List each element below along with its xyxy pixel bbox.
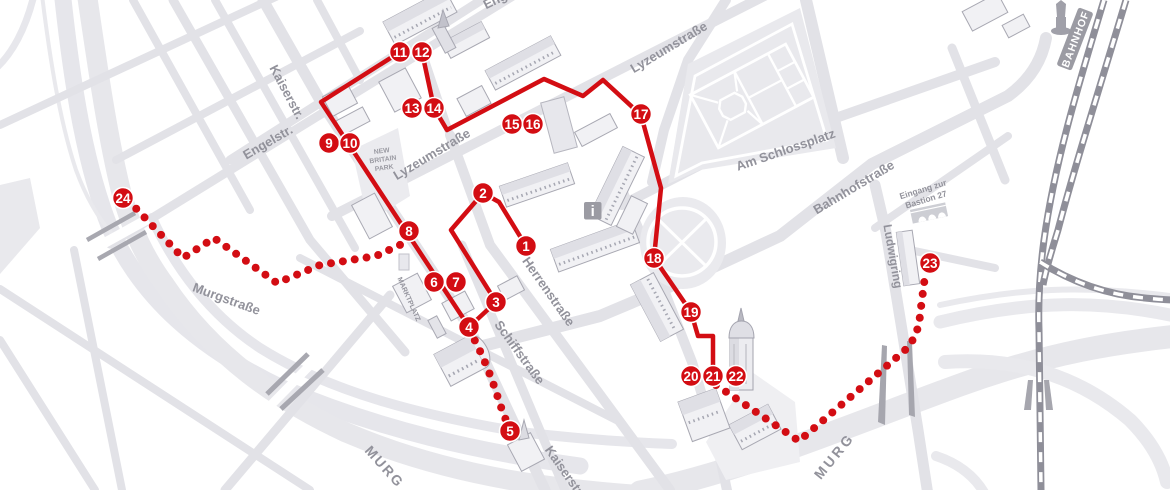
svg-text:4: 4 <box>465 320 473 335</box>
svg-text:23: 23 <box>922 256 938 271</box>
svg-text:6: 6 <box>430 275 438 290</box>
svg-text:18: 18 <box>646 251 662 266</box>
svg-text:7: 7 <box>452 275 460 290</box>
svg-text:22: 22 <box>728 369 743 384</box>
svg-text:17: 17 <box>633 107 648 122</box>
svg-text:11: 11 <box>393 45 408 60</box>
svg-text:3: 3 <box>492 295 500 310</box>
svg-text:1: 1 <box>522 239 530 254</box>
svg-text:2: 2 <box>479 186 487 201</box>
svg-text:20: 20 <box>683 369 698 384</box>
svg-text:9: 9 <box>325 136 333 151</box>
svg-text:12: 12 <box>414 45 429 60</box>
svg-text:24: 24 <box>115 191 131 206</box>
svg-text:19: 19 <box>683 305 698 320</box>
svg-text:8: 8 <box>405 224 413 239</box>
svg-text:5: 5 <box>506 424 514 439</box>
svg-text:13: 13 <box>404 101 420 116</box>
svg-text:16: 16 <box>525 117 541 132</box>
svg-text:21: 21 <box>705 369 721 384</box>
svg-text:15: 15 <box>504 117 520 132</box>
svg-text:i: i <box>591 203 595 220</box>
svg-text:10: 10 <box>342 136 357 151</box>
svg-text:14: 14 <box>426 101 442 116</box>
